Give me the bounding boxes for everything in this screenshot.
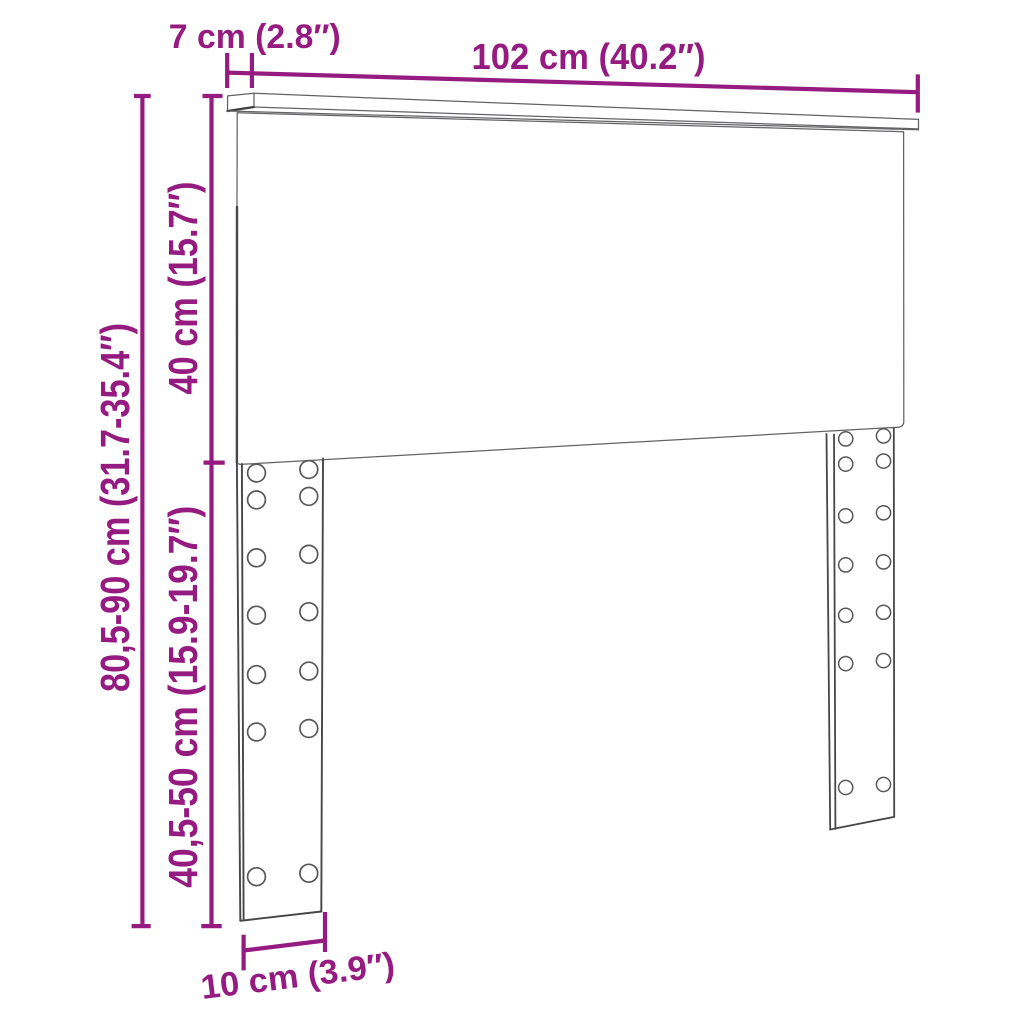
svg-text:7 cm (2.8″): 7 cm (2.8″) — [169, 18, 341, 56]
svg-text:40,5-50 cm (15.9-19.7″): 40,5-50 cm (15.9-19.7″) — [160, 506, 206, 888]
svg-text:80,5-90 cm (31.7-35.4″): 80,5-90 cm (31.7-35.4″) — [92, 323, 138, 692]
svg-text:40 cm (15.7″): 40 cm (15.7″) — [160, 182, 206, 395]
svg-text:102 cm (40.2″): 102 cm (40.2″) — [472, 36, 706, 77]
